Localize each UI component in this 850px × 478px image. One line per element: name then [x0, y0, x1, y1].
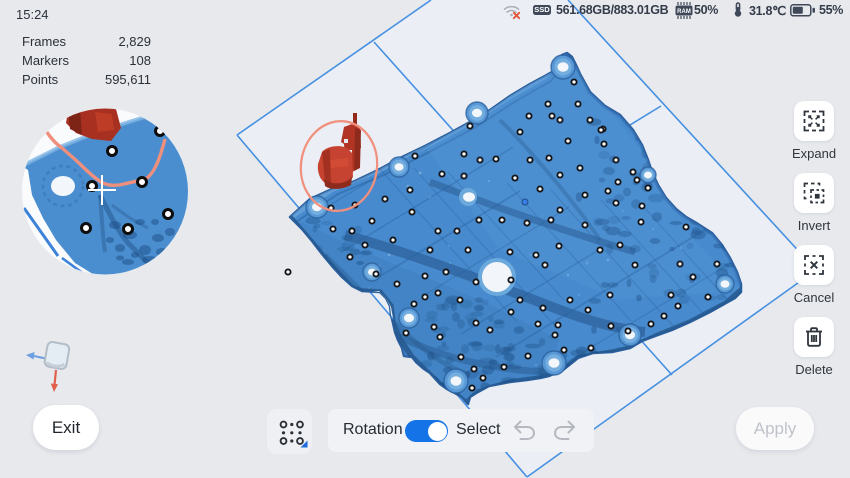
svg-text:RAM: RAM: [677, 9, 691, 15]
